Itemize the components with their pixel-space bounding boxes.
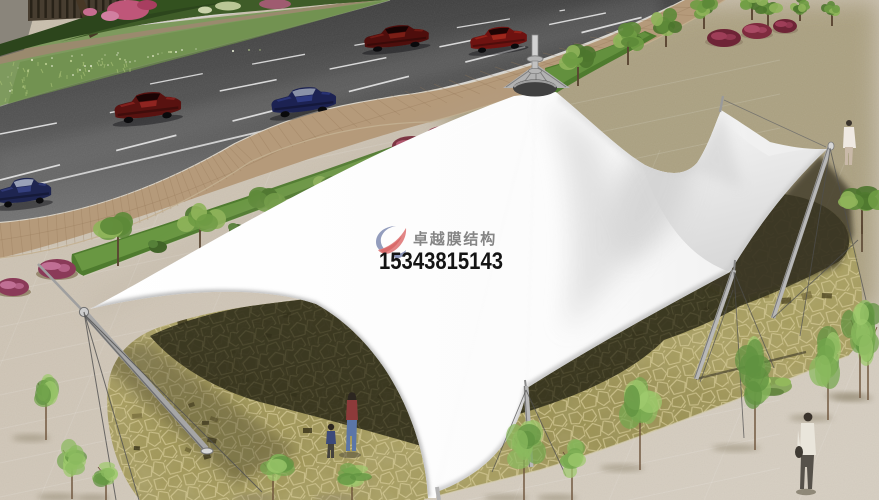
svg-text:卓越膜结构: 卓越膜结构 <box>413 230 497 248</box>
svg-text:15343815143: 15343815143 <box>379 248 503 275</box>
